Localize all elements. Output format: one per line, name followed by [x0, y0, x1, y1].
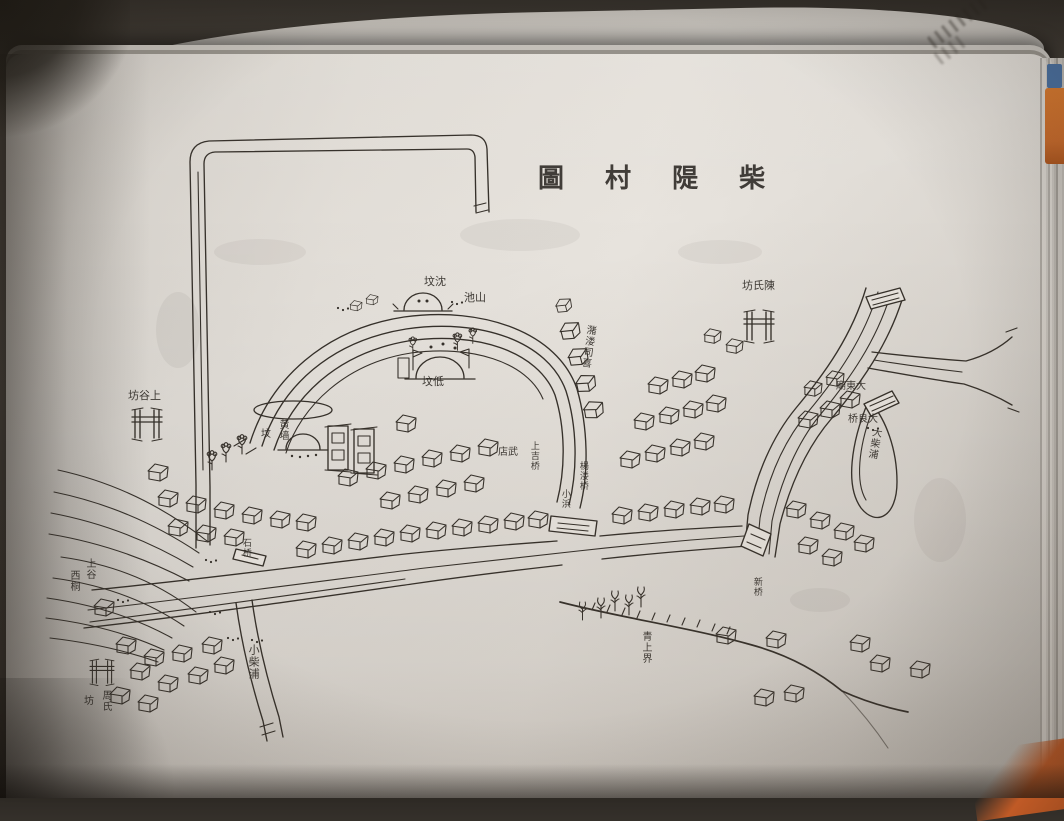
- canal-northwest: [190, 135, 489, 548]
- tomb-shen: [393, 293, 453, 311]
- hall-glyph: [351, 427, 377, 475]
- map-title: 圖 村 隄 柴: [538, 158, 798, 195]
- bridge-east-low: [741, 524, 771, 556]
- house-clusters: [94, 295, 930, 712]
- bridge-west: [233, 549, 266, 566]
- river-arch-center: [234, 315, 586, 508]
- bridge-northeast: [866, 288, 905, 309]
- arch-shanggu: [132, 408, 162, 441]
- pond-dacaipu: [852, 402, 897, 517]
- tomb-huangqiang: [278, 434, 328, 458]
- oval-pond: [254, 401, 332, 419]
- road-southeast: [560, 602, 908, 748]
- trees: [207, 328, 645, 620]
- bottom-left-shadow: [0, 678, 220, 798]
- tomb-center: [398, 343, 475, 380]
- arch-chen: [744, 310, 774, 343]
- bridge-center: [549, 516, 597, 536]
- dot-marks: [117, 301, 879, 643]
- creek-xiaocaipu: [236, 600, 283, 741]
- river-bottom-main: [84, 526, 748, 628]
- bridge-daliang: [864, 391, 899, 416]
- river-east-scurve: [745, 288, 902, 557]
- book-photo: { "book": { "map_title_display": "圖 村 隄 …: [0, 0, 1064, 798]
- hall-glyph: [325, 424, 351, 472]
- river-west-braids: [46, 470, 207, 662]
